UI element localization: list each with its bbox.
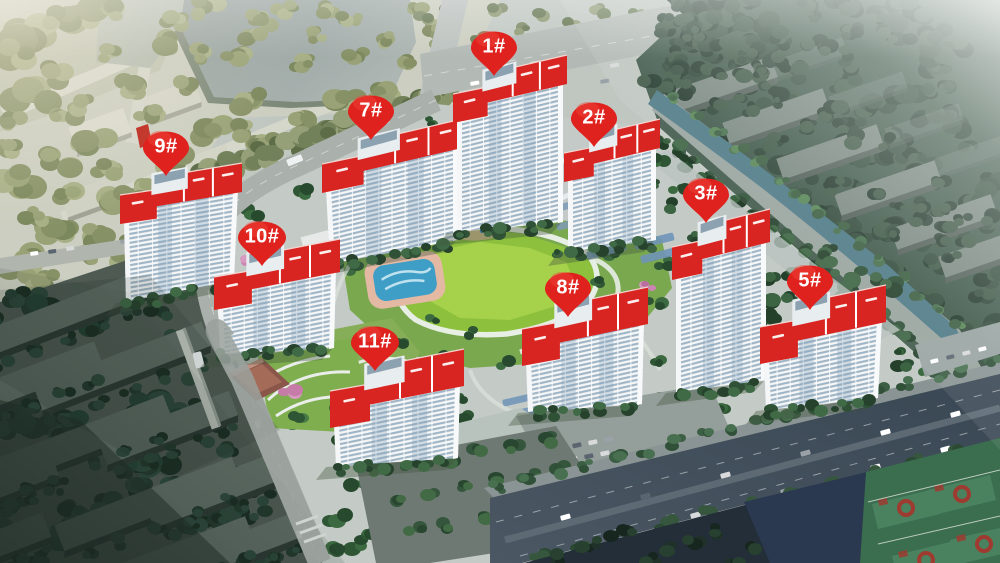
svg-text:10#: 10# [245,226,280,248]
svg-text:9#: 9# [154,136,177,158]
svg-text:3#: 3# [694,183,717,205]
svg-text:1#: 1# [482,36,505,58]
svg-text:5#: 5# [798,270,821,292]
svg-text:7#: 7# [359,100,382,122]
svg-text:2#: 2# [582,107,605,129]
svg-text:11#: 11# [358,331,392,353]
svg-text:8#: 8# [556,277,579,299]
